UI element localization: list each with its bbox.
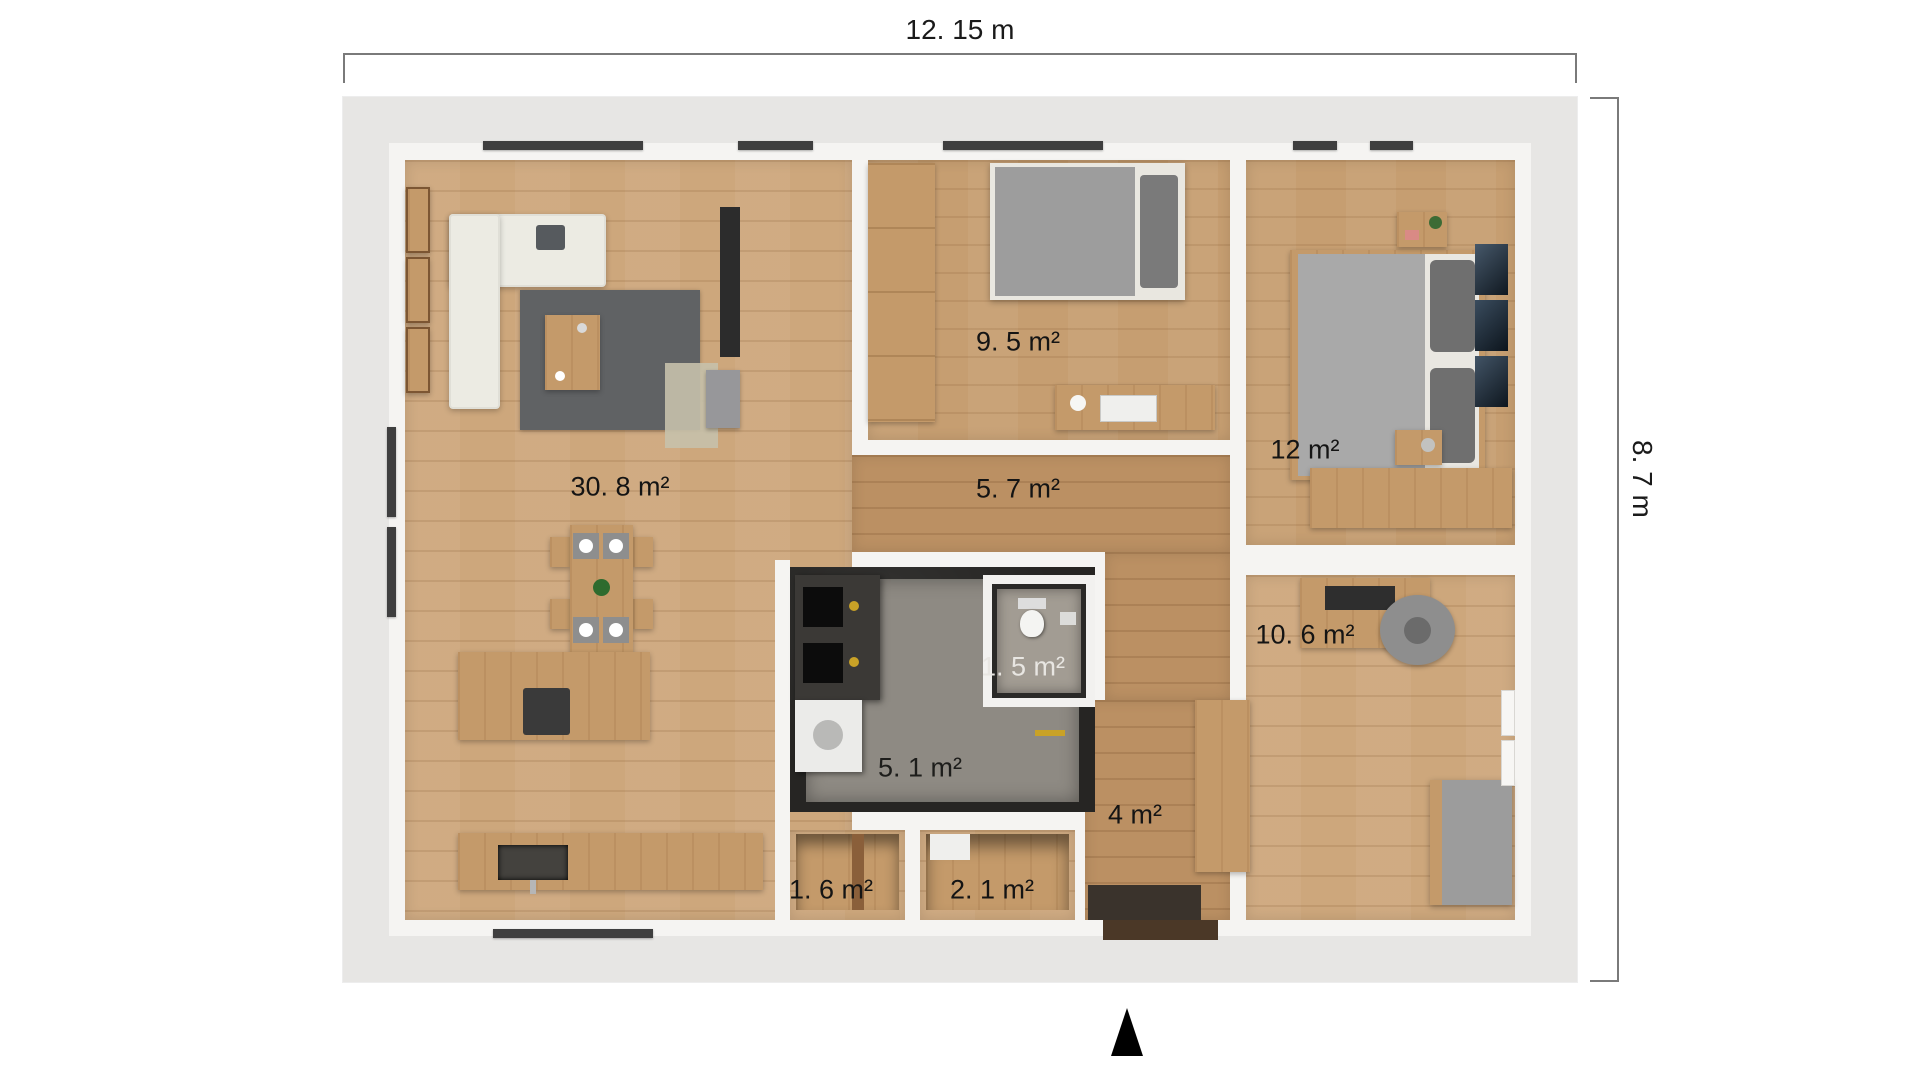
window-icon: [387, 427, 396, 517]
gold-faucet-icon: [849, 601, 859, 611]
area-label-storage-large: 2. 1 m²: [950, 875, 1034, 906]
area-label-master-bedroom: 12 m²: [1270, 435, 1339, 466]
closet-door: [1501, 740, 1515, 786]
dining-chair: [550, 599, 570, 629]
plant-icon: [1429, 216, 1442, 229]
kitchen-counter: [458, 833, 763, 890]
wardrobe: [868, 163, 935, 422]
window-icon: [1293, 141, 1337, 150]
height-dimension-line: [1617, 97, 1619, 982]
north-arrow-icon: [1111, 1008, 1143, 1056]
coffee-table: [545, 315, 600, 390]
bathroom-sink: [803, 643, 843, 683]
wall-art: [1475, 356, 1508, 407]
hall-wardrobe: [1195, 700, 1250, 872]
kitchen-sink: [498, 845, 568, 880]
wall-art: [1475, 300, 1508, 351]
daybed-sofa: [1430, 780, 1512, 905]
area-label-hallway: 5. 7 m²: [976, 474, 1060, 505]
window-icon: [387, 527, 396, 617]
wall-art: [1475, 244, 1508, 295]
height-dimension-tick-top: [1590, 97, 1619, 99]
gold-faucet-icon: [849, 657, 859, 667]
window-icon: [1370, 141, 1413, 150]
kids-desk: [1055, 385, 1215, 430]
width-dimension-tick-left: [343, 53, 345, 83]
keyboard-icon: [1100, 395, 1157, 422]
table-lamp-icon: [1421, 438, 1435, 452]
sofa-left-arm: [449, 214, 500, 409]
office-chair-seat: [1404, 617, 1431, 644]
entry-door-mat: [1088, 885, 1201, 920]
book: [1405, 230, 1419, 240]
monitor-icon: [1325, 586, 1395, 610]
dining-chair: [633, 537, 653, 567]
area-label-storage-small: 1. 6 m²: [789, 875, 873, 906]
sofa-throw-cushion: [536, 225, 565, 250]
height-dimension-label: 8. 7 m: [1626, 440, 1658, 518]
area-label-entry-hall: 4 m²: [1108, 800, 1162, 831]
table-knob: [555, 371, 565, 381]
dining-table: [570, 525, 633, 653]
gold-towel-rail-icon: [1035, 730, 1065, 736]
placemat: [573, 533, 599, 559]
entry-door: [1103, 920, 1218, 940]
desk-lamp-icon: [1070, 395, 1086, 411]
closet-door: [1501, 690, 1515, 736]
wall-panel: [406, 187, 430, 253]
side-cabinet: [706, 370, 740, 428]
nightstand: [1395, 430, 1442, 465]
width-dimension-label: 12. 15 m: [760, 14, 1160, 46]
faucet-icon: [530, 880, 536, 894]
width-dimension-tick-right: [1575, 53, 1577, 83]
floor-plan-building: 30. 8 m² 9. 5 m² 5. 7 m² 12 m² 1. 5 m² 1…: [343, 97, 1577, 982]
window-icon: [943, 141, 1103, 150]
dining-chair: [550, 537, 570, 567]
bathroom-vanity: [795, 575, 880, 700]
width-dimension-line: [343, 53, 1577, 55]
wall-panel: [406, 327, 430, 393]
wall-living-bathroom: [775, 560, 790, 920]
placemat: [603, 617, 629, 643]
height-dimension-tick-bottom: [1590, 980, 1619, 982]
toilet-tank: [1018, 598, 1046, 609]
hallway-connector-floor: [1105, 552, 1230, 700]
nightstand: [1397, 212, 1447, 247]
dresser-bench: [1310, 468, 1512, 528]
placemat: [573, 617, 599, 643]
bed-pillow: [1430, 260, 1475, 352]
window-icon: [483, 141, 643, 150]
area-label-office: 10. 6 m²: [1255, 620, 1354, 651]
washing-machine: [795, 700, 862, 772]
plant-icon: [593, 579, 610, 596]
area-label-small-bedroom: 9. 5 m²: [976, 327, 1060, 358]
wc-room: [983, 575, 1095, 707]
single-bed: [990, 163, 1185, 300]
toilet-icon: [1020, 610, 1044, 637]
area-label-wc: 1. 5 m²: [981, 652, 1065, 683]
tv-unit: [720, 207, 740, 357]
bed-pillow: [1140, 175, 1178, 288]
table-knob: [577, 323, 587, 333]
window-icon: [738, 141, 813, 150]
cooktop-icon: [523, 688, 570, 735]
area-label-living-room: 30. 8 m²: [570, 472, 669, 503]
dining-chair: [633, 599, 653, 629]
area-label-bathroom: 5. 1 m²: [878, 753, 962, 784]
bathroom-sink: [803, 587, 843, 627]
bed-blanket: [995, 167, 1135, 296]
window-icon: [493, 929, 653, 938]
wc-sink: [1060, 612, 1076, 625]
placemat: [603, 533, 629, 559]
storage-box: [930, 834, 970, 860]
kitchen-island: [458, 652, 650, 740]
wall-panel: [406, 257, 430, 323]
office-chair: [1380, 595, 1455, 665]
washing-machine-door: [813, 720, 843, 750]
